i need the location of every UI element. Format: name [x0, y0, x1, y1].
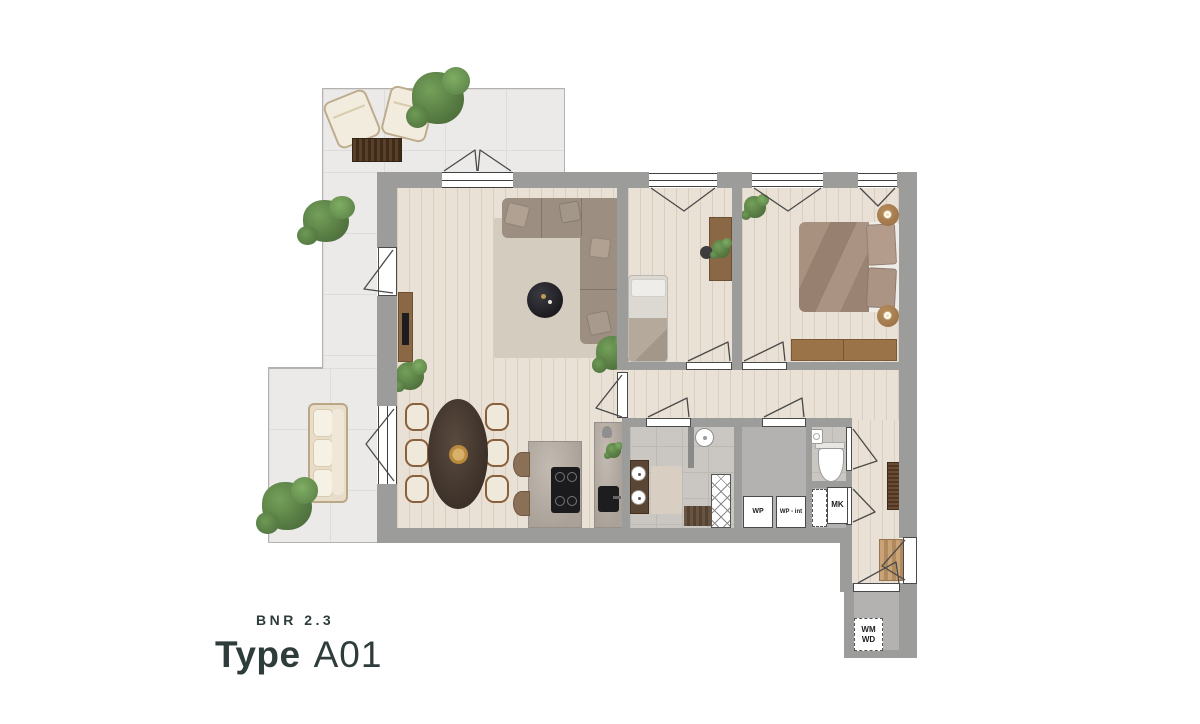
door-swing [596, 375, 622, 417]
door-swing [744, 342, 785, 361]
door-swing [853, 489, 875, 522]
door-swing [364, 250, 393, 293]
door-window-overlay [0, 0, 1200, 724]
casement-mark [754, 188, 821, 211]
casement-mark [860, 188, 895, 206]
door-swing [648, 398, 689, 417]
door-swing [853, 429, 877, 469]
page-title: TypeA01 [215, 633, 382, 677]
door-swing [688, 342, 730, 361]
casement-mark [651, 188, 715, 211]
casement-mark [478, 150, 511, 171]
type-label: Type [215, 634, 301, 675]
casement-mark [366, 409, 394, 481]
floorplan-canvas: WP WP - int MK WM WD BNR 2.3 TypeA01 [0, 0, 1200, 724]
door-swing [764, 398, 804, 417]
casement-mark [444, 150, 477, 171]
type-code: A01 [314, 634, 383, 675]
door-swing [882, 540, 905, 580]
unit-number: BNR 2.3 [256, 612, 334, 628]
